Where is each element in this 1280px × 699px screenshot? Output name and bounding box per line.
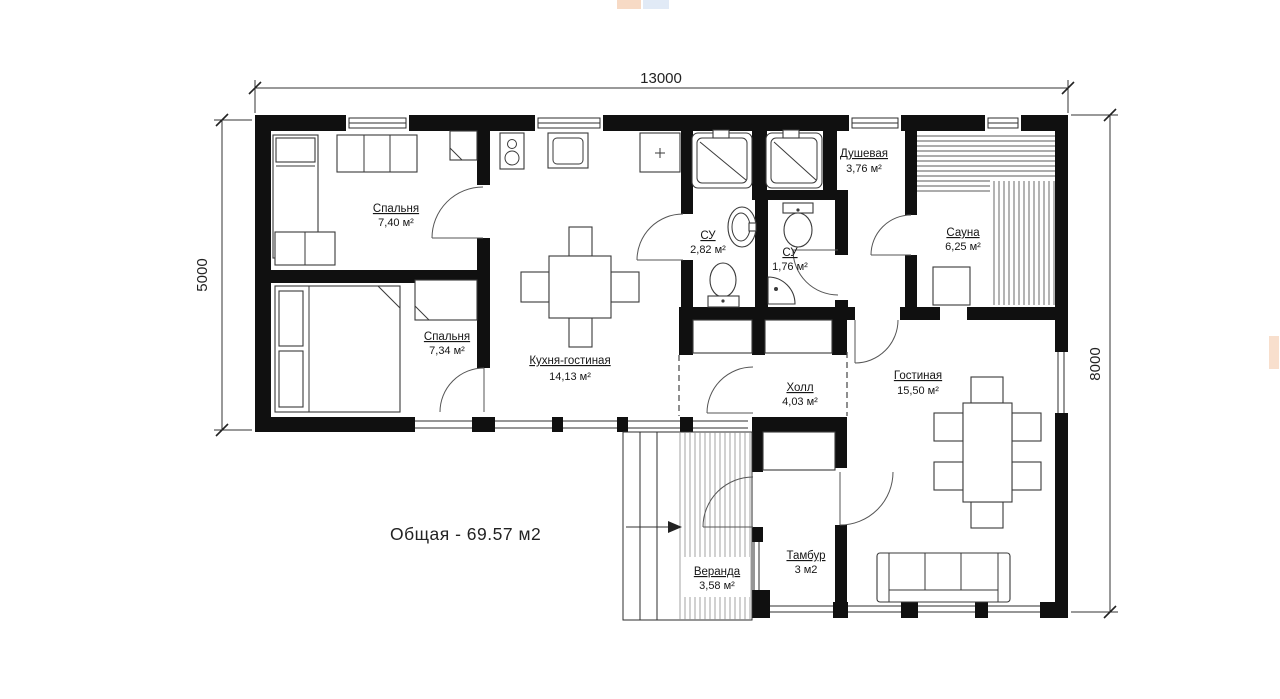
svg-text:Душевая: Душевая	[840, 148, 888, 160]
svg-text:Спальня: Спальня	[424, 331, 470, 343]
open-boundaries	[679, 352, 847, 416]
corner-sink	[768, 277, 795, 304]
window-east	[1058, 352, 1064, 413]
dimension-left-value: 5000	[194, 258, 211, 291]
door-hall-veranda	[707, 367, 753, 413]
floor-plan-page: 13000 5000 8000 Спальня 7,40 м² Спальня …	[0, 0, 1280, 699]
svg-text:3 м2: 3 м2	[795, 564, 818, 576]
entry-direction-arrow	[626, 521, 682, 533]
room-label-vestibule: Тамбур 3 м2	[786, 550, 825, 576]
svg-text:Гостиная: Гостиная	[894, 370, 942, 382]
svg-text:Холл: Холл	[786, 382, 813, 394]
bed-double	[275, 286, 400, 412]
shower-cabin-2	[766, 130, 822, 188]
door-threshold-hall-veranda	[693, 421, 748, 428]
wardrobe-bedroom2	[415, 280, 477, 320]
room-label-shower-room: Душевая 3,76 м²	[840, 148, 888, 175]
chest	[275, 232, 335, 265]
window-south-7	[918, 606, 975, 612]
wardrobe-bedroom1	[450, 131, 477, 160]
dimension-top-value: 13000	[640, 70, 682, 87]
window-top-1	[346, 115, 409, 131]
room-label-hall: Холл 4,03 м²	[782, 382, 818, 408]
door-bathroom1	[637, 214, 683, 260]
sink-oval	[728, 207, 756, 247]
toilet-1	[708, 263, 739, 307]
window-south-8	[988, 606, 1040, 612]
hall-wardrobe-1	[693, 320, 752, 353]
svg-text:6,25 м²: 6,25 м²	[945, 241, 981, 253]
stove	[500, 133, 524, 169]
svg-text:14,13 м²: 14,13 м²	[549, 371, 591, 383]
svg-text:7,34 м²: 7,34 м²	[429, 345, 465, 357]
room-label-bedroom1: Спальня 7,40 м²	[373, 203, 419, 229]
svg-text:Тамбур: Тамбур	[786, 550, 825, 562]
total-area-label: Общая - 69.57 м2	[390, 524, 541, 544]
svg-text:3,58 м²: 3,58 м²	[699, 580, 735, 592]
toilet-2	[783, 203, 813, 247]
room-label-veranda: Веранда 3,58 м²	[684, 557, 750, 597]
door-sauna	[871, 215, 911, 255]
dimension-right: 8000	[1071, 109, 1118, 618]
floor-plan-drawing: 13000 5000 8000 Спальня 7,40 м² Спальня …	[0, 0, 1280, 699]
vestibule-closet	[763, 432, 835, 470]
svg-text:3,76 м²: 3,76 м²	[846, 163, 882, 175]
door-bedroom2	[440, 368, 484, 412]
kitchen-table	[521, 227, 639, 347]
dimension-left: 5000	[194, 114, 252, 436]
window-top-3	[849, 115, 901, 131]
sofa	[877, 553, 1010, 602]
window-south-4	[628, 421, 680, 428]
hall-wardrobe-2	[765, 320, 832, 353]
svg-text:Кухня-гостиная: Кухня-гостиная	[529, 355, 610, 367]
fridge	[640, 133, 680, 172]
svg-text:Спальня: Спальня	[373, 203, 419, 215]
window-south-2	[495, 421, 552, 428]
svg-text:Сауна: Сауна	[946, 227, 980, 239]
dining-table	[934, 377, 1041, 528]
shower-cabin-1	[692, 130, 752, 188]
door-vestibule-west	[703, 477, 753, 527]
window-south-3	[563, 421, 617, 428]
svg-text:4,03 м²: 4,03 м²	[782, 396, 818, 408]
door-vestibule-east	[840, 472, 893, 525]
window-top-4	[985, 115, 1021, 131]
kitchen-sink	[548, 133, 588, 168]
dresser	[337, 135, 417, 172]
room-label-bedroom2: Спальня 7,34 м²	[424, 331, 470, 357]
window-south-5	[770, 606, 833, 612]
window-vestibule	[754, 542, 759, 590]
sauna-heater	[933, 267, 970, 305]
dimension-top: 13000	[249, 70, 1074, 113]
window-top-2	[535, 115, 603, 131]
window-south-6	[848, 606, 901, 612]
svg-text:7,40 м²: 7,40 м²	[378, 217, 414, 229]
svg-text:Веранда: Веранда	[694, 566, 741, 578]
room-label-bathroom2: СУ 1,76 м²	[772, 247, 808, 273]
door-bedroom1	[432, 187, 483, 238]
svg-text:СУ: СУ	[700, 230, 716, 242]
dimension-right-value: 8000	[1087, 347, 1104, 380]
room-label-bathroom1: СУ 2,82 м²	[690, 230, 726, 256]
window-south-1	[415, 421, 472, 428]
room-label-sauna: Сауна 6,25 м²	[945, 227, 981, 253]
svg-text:СУ: СУ	[782, 247, 798, 259]
room-label-kitchen-living: Кухня-гостиная 14,13 м²	[529, 355, 610, 383]
svg-text:15,50 м²: 15,50 м²	[897, 385, 939, 397]
room-label-living-room: Гостиная 15,50 м²	[894, 370, 942, 397]
svg-text:1,76 м²: 1,76 м²	[772, 261, 808, 273]
svg-text:2,82 м²: 2,82 м²	[690, 244, 726, 256]
door-corridor-living	[855, 320, 898, 363]
